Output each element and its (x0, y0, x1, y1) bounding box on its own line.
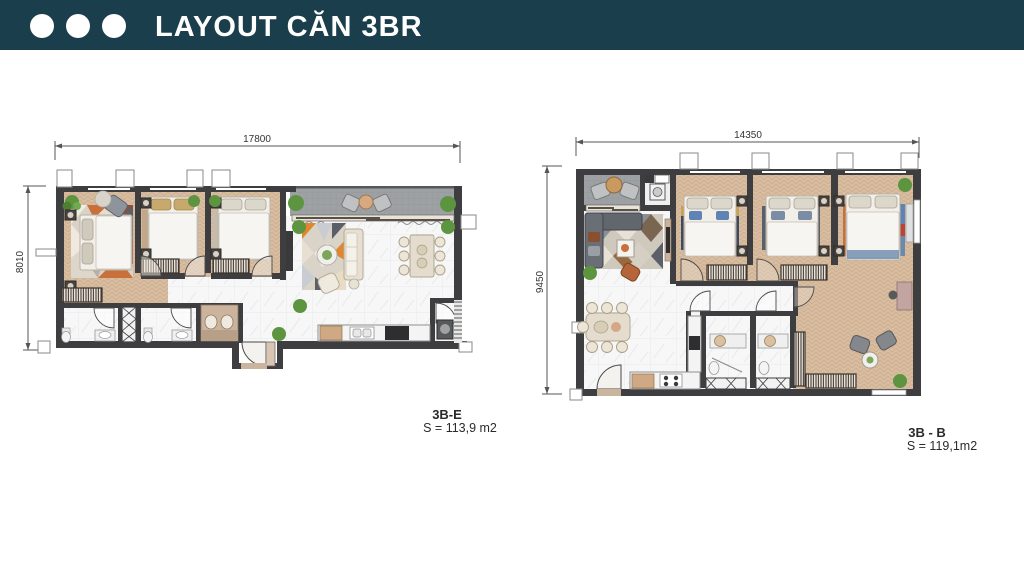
svg-text:14350: 14350 (734, 130, 762, 141)
svg-text:3B-E: 3B-E (432, 407, 462, 422)
svg-text:S = 119,1m2: S = 119,1m2 (907, 439, 977, 453)
svg-text:3B - B: 3B - B (908, 425, 946, 440)
svg-text:17800: 17800 (243, 134, 271, 145)
svg-text:S = 113,9 m2: S = 113,9 m2 (423, 421, 497, 435)
svg-text:LAYOUT CĂN 3BR: LAYOUT CĂN 3BR (155, 10, 423, 43)
svg-text:8010: 8010 (15, 250, 26, 273)
svg-text:9450: 9450 (535, 270, 546, 293)
